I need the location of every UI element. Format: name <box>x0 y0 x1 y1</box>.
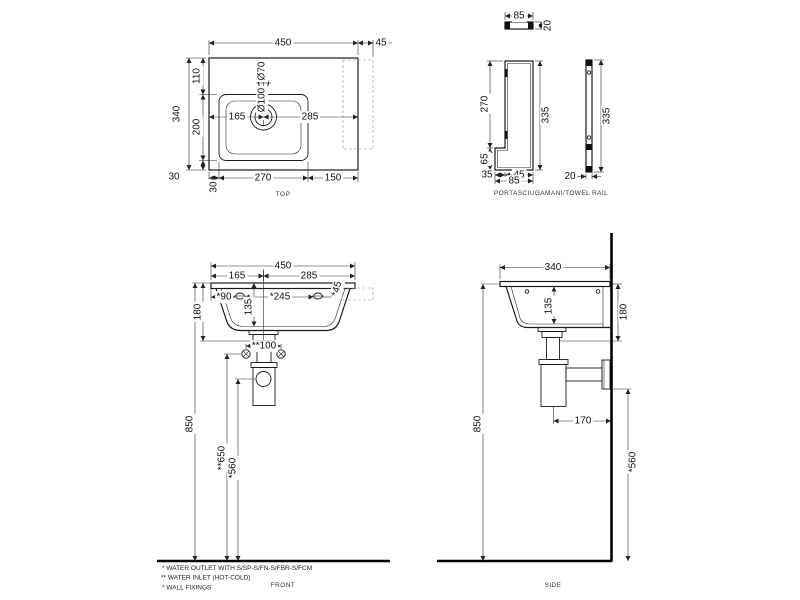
rail-side-profile <box>586 60 592 172</box>
dim-front-bowl-inner: 135 <box>244 298 255 315</box>
top-view <box>186 40 392 182</box>
dim-front-height: 180 <box>193 303 204 320</box>
caption-side: SIDE <box>545 582 562 589</box>
dim-rail-top-width: 85 <box>513 11 525 22</box>
side-view <box>437 233 631 561</box>
dim-rail-top-depth: 20 <box>543 20 554 32</box>
dim-front-inlet-gap: **100 <box>252 341 277 352</box>
dim-front-center-right: 285 <box>301 271 318 282</box>
towel-rail-views <box>487 12 604 184</box>
note-water-outlet: * WATER OUTLET WITH S/SP-S/FN-S/FBR-S/FC… <box>162 565 312 572</box>
dim-rail-side-height: 335 <box>602 107 613 124</box>
dim-faucet-diameter: Ø70 <box>257 61 268 80</box>
dim-rail-bottom-total: 85 <box>508 176 520 187</box>
dim-top-width: 450 <box>275 38 292 49</box>
note-water-inlet: ** WATER INLET (HOT-COLD) <box>161 575 250 582</box>
dim-top-right-deck: 150 <box>325 173 342 184</box>
dim-rail-front-total: 335 <box>541 106 552 123</box>
dim-rail-bottom-a: 35 <box>481 170 493 181</box>
dim-rail-front-upper: 270 <box>480 95 491 112</box>
dim-top-rear-offset: 110 <box>192 68 203 84</box>
dim-top-left-inset: 30 <box>209 181 220 193</box>
water-outlet <box>256 372 271 387</box>
dim-front-outlet-height: *560 <box>228 457 239 478</box>
dim-front-inlet-height: **650 <box>217 445 228 470</box>
dim-top-center-left: 165 <box>229 112 246 123</box>
dim-rail-front-lower: 65 <box>480 153 491 165</box>
dim-top-bowl-width: 270 <box>255 173 272 184</box>
dim-side-depth: 340 <box>545 262 562 273</box>
outlet-pipe <box>566 368 602 381</box>
rail-hole <box>587 71 590 74</box>
drawing-canvas: 450 45 340 110 200 30 30 270 150 165 285… <box>0 0 800 600</box>
dim-front-fix-left: *90 <box>216 292 231 303</box>
dim-top-bowl-depth: 200 <box>192 118 203 135</box>
dim-front-center-left: 165 <box>229 271 246 282</box>
dim-front-fix-mid: *245 <box>270 292 291 303</box>
bottle-trap <box>541 365 566 407</box>
note-wall-fixings: * WALL FIXINGS <box>162 585 212 592</box>
dim-side-bowl-inner: 135 <box>544 297 555 314</box>
dim-drain-diameter: Ø100 <box>257 87 268 112</box>
dim-top-depth: 340 <box>172 105 183 122</box>
dim-top-rail-overhang: 45 <box>375 38 387 49</box>
dim-side-height: 180 <box>619 303 630 320</box>
caption-top: TOP <box>276 191 290 198</box>
technical-drawing: 450 45 340 110 200 30 30 270 150 165 285… <box>0 0 800 600</box>
labels: 450 45 340 110 200 30 30 270 150 165 285… <box>161 10 639 591</box>
caption-towel-rail: PORTASCIUGAMANI/TOWEL RAIL <box>494 190 608 197</box>
tailpipe <box>547 338 560 360</box>
rail-screw-mark <box>505 131 508 139</box>
dim-top-front-inset: 30 <box>168 172 180 183</box>
rail-screw-mark <box>505 69 508 77</box>
dim-side-outlet-height: *560 <box>628 451 639 472</box>
rail-hole <box>587 136 590 139</box>
basin-rim-side <box>500 282 610 287</box>
dim-top-center-right: 285 <box>302 112 319 123</box>
dim-front-width: 450 <box>275 261 292 272</box>
dim-rail-side-thickness: 20 <box>564 171 576 182</box>
deck-hole <box>525 290 529 294</box>
dim-side-rim-height: 850 <box>473 415 484 432</box>
rail-front-profile <box>495 61 533 170</box>
wall-flange <box>602 360 610 389</box>
deck-hole <box>596 290 600 294</box>
dim-side-trap-wall: 170 <box>575 416 592 427</box>
dim-front-rim-height: 850 <box>185 415 196 432</box>
basin-body-side <box>506 287 610 328</box>
caption-front: FRONT <box>271 582 295 589</box>
